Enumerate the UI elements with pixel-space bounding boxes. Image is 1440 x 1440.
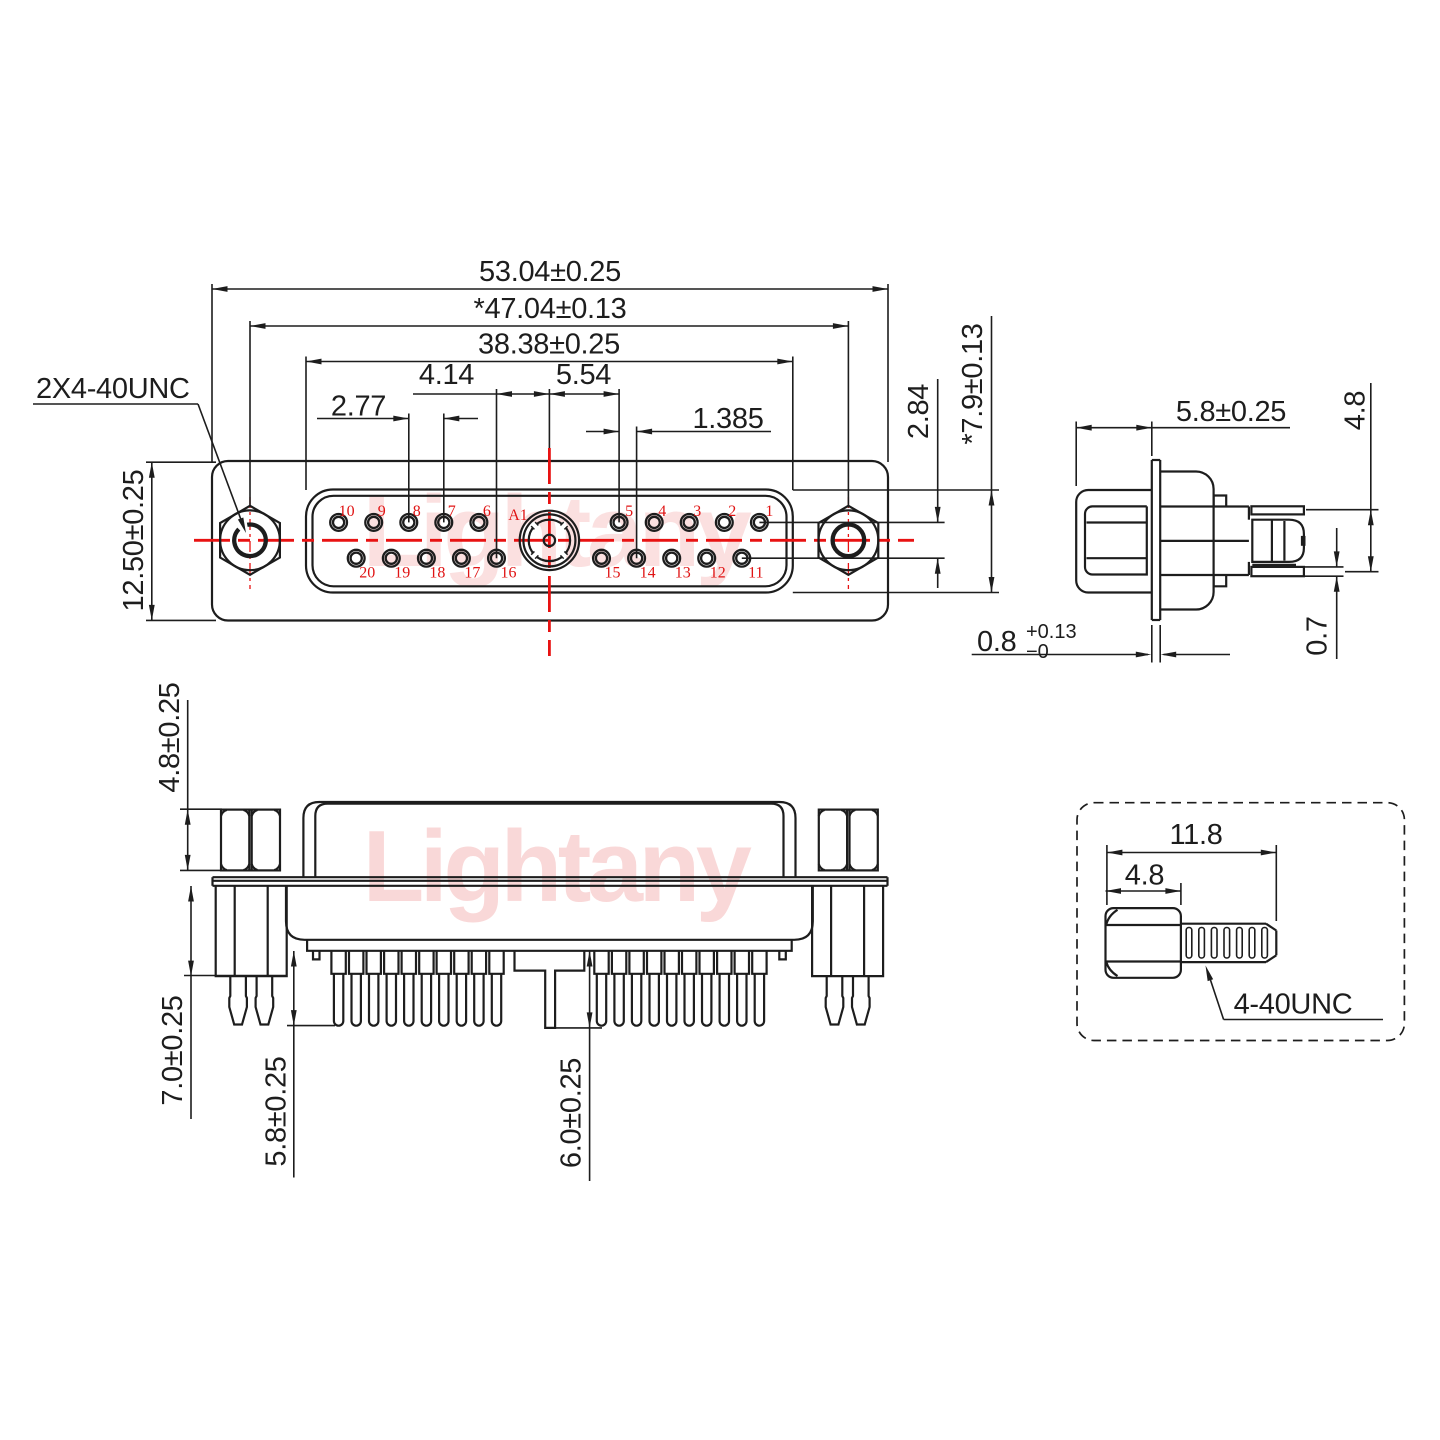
svg-text:9: 9 bbox=[378, 503, 386, 520]
svg-text:4.14: 4.14 bbox=[419, 359, 474, 391]
svg-text:20: 20 bbox=[359, 565, 375, 582]
svg-text:10: 10 bbox=[339, 503, 355, 520]
svg-text:1.385: 1.385 bbox=[692, 403, 763, 435]
svg-text:7: 7 bbox=[448, 503, 456, 520]
svg-text:38.38±0.25: 38.38±0.25 bbox=[478, 329, 620, 361]
svg-text:5.8±0.25: 5.8±0.25 bbox=[260, 1056, 292, 1166]
svg-text:12.50±0.25: 12.50±0.25 bbox=[118, 470, 150, 612]
svg-text:15: 15 bbox=[605, 565, 621, 582]
svg-text:5.54: 5.54 bbox=[556, 359, 611, 391]
svg-text:1: 1 bbox=[765, 503, 773, 520]
svg-text:4.8: 4.8 bbox=[1125, 860, 1164, 892]
svg-text:2.84: 2.84 bbox=[903, 384, 935, 439]
svg-text:2.77: 2.77 bbox=[331, 391, 386, 423]
svg-text:4-40UNC: 4-40UNC bbox=[1234, 989, 1353, 1021]
svg-text:4.8: 4.8 bbox=[1340, 391, 1372, 430]
svg-text:2: 2 bbox=[728, 503, 736, 520]
svg-text:4.8±0.25: 4.8±0.25 bbox=[154, 682, 186, 792]
svg-text:6.0±0.25: 6.0±0.25 bbox=[556, 1058, 588, 1168]
svg-text:11: 11 bbox=[748, 565, 763, 582]
svg-text:8: 8 bbox=[413, 503, 421, 520]
svg-text:53.04±0.25: 53.04±0.25 bbox=[479, 256, 621, 288]
svg-text:2X4-40UNC: 2X4-40UNC bbox=[36, 373, 190, 405]
svg-text:11.8: 11.8 bbox=[1169, 819, 1222, 851]
svg-text:12: 12 bbox=[710, 565, 726, 582]
svg-text:3: 3 bbox=[693, 503, 701, 520]
svg-text:6: 6 bbox=[483, 503, 491, 520]
svg-text:0.8: 0.8 bbox=[977, 626, 1016, 658]
svg-text:7.0±0.25: 7.0±0.25 bbox=[157, 995, 189, 1105]
svg-text:Lightany: Lightany bbox=[363, 476, 752, 588]
svg-text:0.7: 0.7 bbox=[1302, 616, 1334, 655]
svg-text:13: 13 bbox=[675, 565, 691, 582]
svg-text:16: 16 bbox=[501, 565, 517, 582]
svg-text:A1: A1 bbox=[508, 507, 528, 524]
svg-text:5: 5 bbox=[625, 503, 633, 520]
svg-text:19: 19 bbox=[394, 565, 410, 582]
svg-text:17: 17 bbox=[464, 565, 480, 582]
svg-text:*7.9±0.13: *7.9±0.13 bbox=[957, 323, 989, 444]
svg-text:4: 4 bbox=[658, 503, 666, 520]
svg-text:5.8±0.25: 5.8±0.25 bbox=[1176, 396, 1286, 428]
svg-text:*47.04±0.13: *47.04±0.13 bbox=[474, 293, 627, 325]
svg-text:−0: −0 bbox=[1026, 641, 1049, 663]
svg-text:+0.13: +0.13 bbox=[1026, 621, 1077, 643]
svg-text:18: 18 bbox=[429, 565, 445, 582]
svg-text:14: 14 bbox=[640, 565, 656, 582]
svg-text:Lightany: Lightany bbox=[363, 811, 752, 923]
